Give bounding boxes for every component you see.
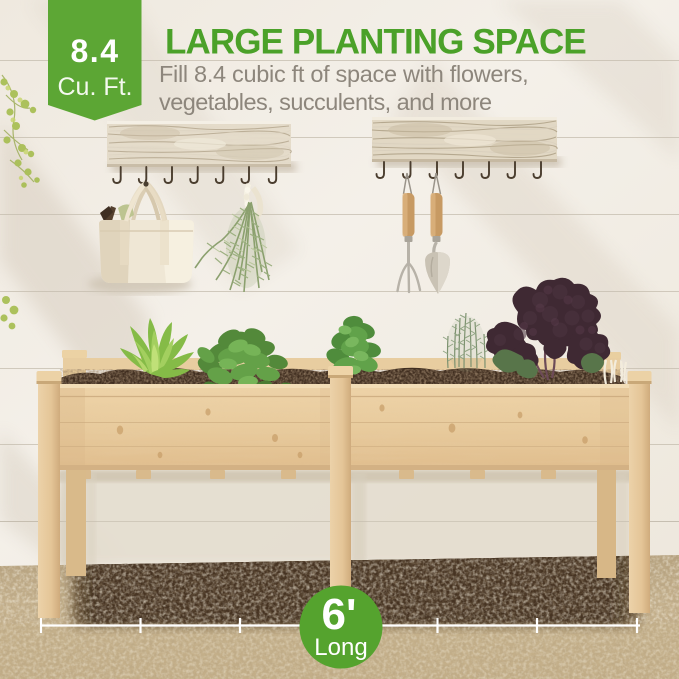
- svg-text:vegetables, succulents, and mo: vegetables, succulents, and more: [159, 89, 492, 115]
- svg-text:Fill 8.4 cubic ft of space wit: Fill 8.4 cubic ft of space with flowers,: [159, 61, 528, 87]
- svg-text:Cu. Ft.: Cu. Ft.: [57, 73, 132, 101]
- svg-text:Long: Long: [314, 634, 367, 661]
- svg-text:8.4: 8.4: [71, 33, 120, 69]
- svg-text:LARGE PLANTING SPACE: LARGE PLANTING SPACE: [165, 23, 586, 62]
- svg-text:6': 6': [322, 590, 357, 639]
